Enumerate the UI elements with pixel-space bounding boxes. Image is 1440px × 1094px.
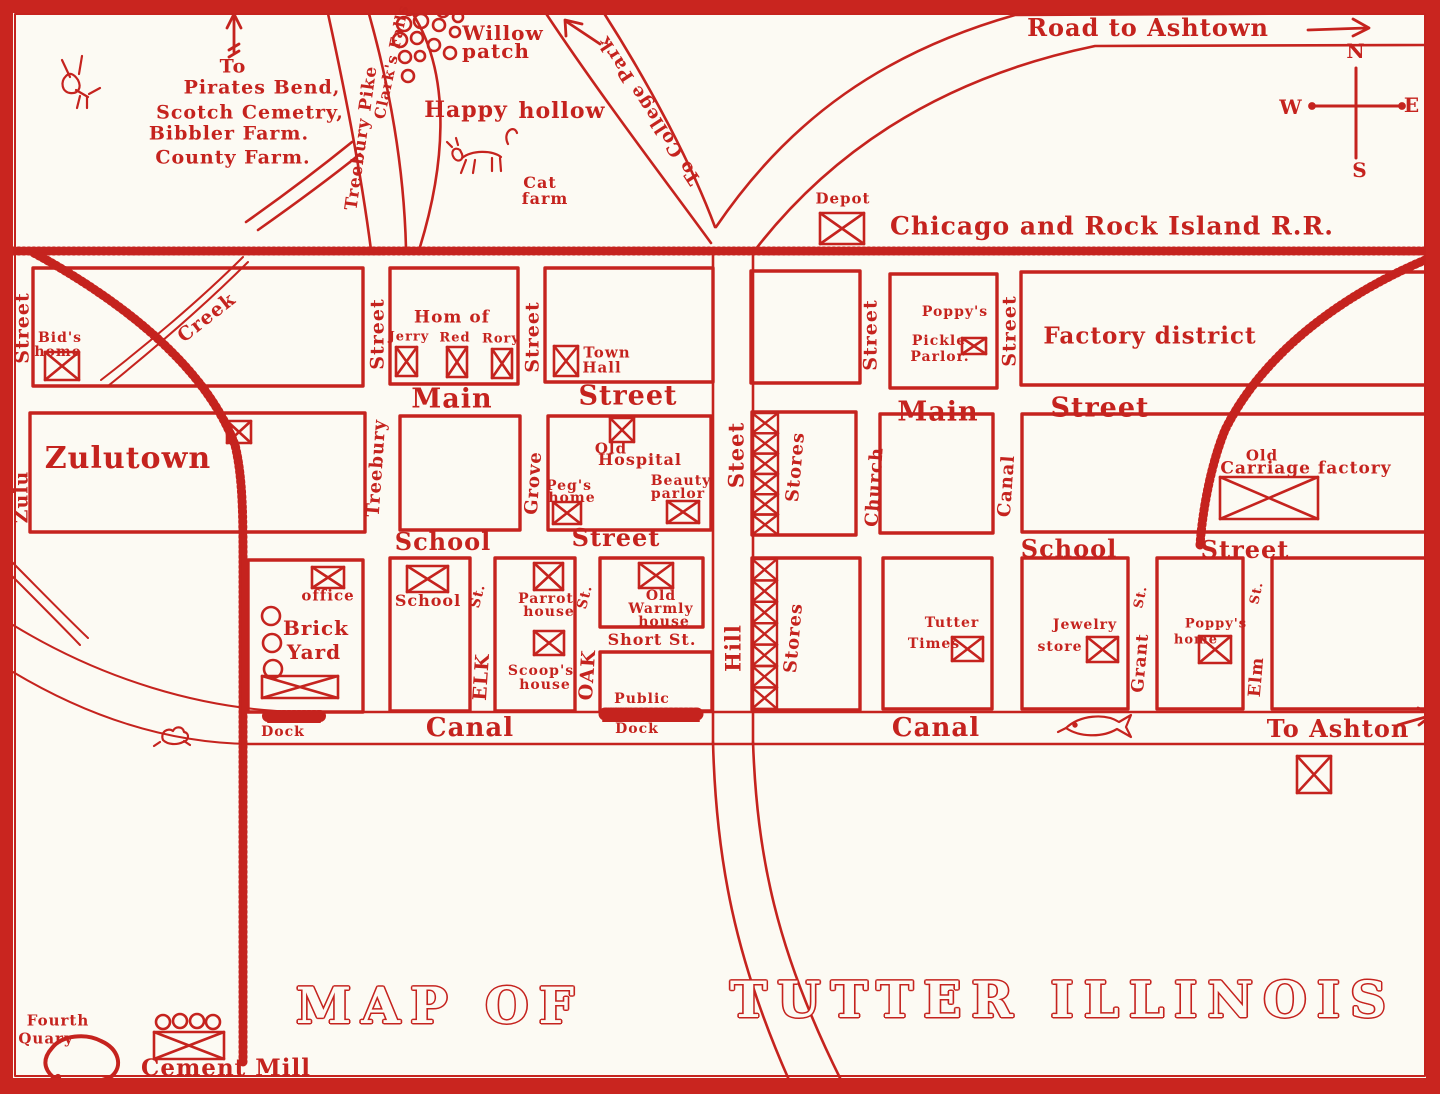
label-church-r2: Church — [863, 446, 887, 527]
label-treebury-street-r1: Street — [369, 298, 388, 369]
label-bids: Bid's — [38, 331, 82, 345]
label-depot: Depot — [816, 192, 871, 207]
map-labels-layer: ToPirates Bend,Scotch Cemetry,Bibbler Fa… — [0, 0, 1440, 1094]
label-grant-st: St. — [1132, 584, 1149, 609]
label-canal-street-r1: Street — [1001, 295, 1020, 366]
label-county-farm: County Farm. — [155, 149, 310, 168]
label-scoops-house: house — [519, 678, 570, 692]
label-stores-r2: Stores — [784, 431, 808, 503]
label-hill-steet: Steet — [726, 422, 747, 488]
label-jewelry: Jewelry — [1053, 618, 1117, 632]
label-carriage-2: Carriage factory — [1220, 461, 1391, 478]
label-poppys-home-2: home — [1174, 634, 1218, 647]
label-office: office — [301, 589, 354, 604]
label-old-hospital-2: Hospital — [598, 452, 682, 468]
label-church-street-r1: Street — [862, 299, 881, 370]
label-elm-st: St. — [1248, 580, 1265, 605]
label-compass-e: E — [1404, 95, 1420, 115]
label-main-street-right: Street — [1050, 395, 1149, 422]
label-creek-upper: Creek — [175, 290, 240, 347]
label-poppys-home-1: Poppy's — [1185, 618, 1247, 631]
label-clarks-falls: Clark's Falls — [373, 4, 412, 121]
label-school-right: School — [1021, 537, 1118, 561]
label-bibbler-farm: Bibbler Farm. — [149, 125, 309, 144]
label-oak-st: St. — [575, 583, 595, 610]
label-rory: Rory — [482, 333, 520, 346]
label-compass-w: W — [1279, 97, 1302, 117]
label-map-of: MAP OF — [296, 981, 584, 1031]
label-school-bldg: School — [395, 593, 461, 609]
label-elk-st: St. — [468, 582, 488, 609]
label-hill: Hill — [723, 624, 744, 672]
label-to-direction: To — [220, 58, 247, 77]
label-grove-r2: Grove — [523, 451, 545, 516]
label-grant: Grant — [1130, 633, 1152, 694]
label-town-hall: Hall — [582, 361, 621, 376]
label-short-st: Short St. — [608, 632, 697, 648]
label-main-right: Main — [897, 399, 978, 426]
label-zulu-street-upper: Street — [14, 292, 33, 363]
label-jewelry-store: store — [1038, 640, 1083, 654]
label-elm: Elm — [1247, 656, 1267, 698]
label-canal-st-r2: Canal — [996, 454, 1018, 518]
label-scoops: Scoop's — [508, 664, 574, 678]
label-school-street-right: Street — [1201, 538, 1290, 562]
label-red: Red — [439, 332, 470, 345]
label-road-to-ashtown: Road to Ashtown — [1027, 16, 1269, 40]
label-tutter-times-1: Tutter — [925, 616, 980, 630]
label-parrot-house: house — [523, 605, 574, 619]
label-railroad-name: Chicago and Rock Island R.R. — [890, 214, 1334, 239]
label-compass-n: N — [1346, 41, 1365, 61]
label-warmly-3: house — [638, 615, 689, 629]
label-zulu-street-lower: Zulu — [13, 471, 32, 524]
label-dock-left: Dock — [261, 725, 305, 739]
label-canal-right: Canal — [892, 715, 980, 741]
label-factory-district: Factory district — [1043, 325, 1256, 348]
label-beauty-parlor: parlor — [651, 487, 705, 501]
label-main-street-left: Street — [578, 383, 677, 410]
label-pirates-bend: Pirates Bend, — [184, 79, 341, 98]
label-public-dock: Dock — [615, 722, 659, 736]
label-oak: OAK — [577, 649, 599, 701]
label-public: Public — [614, 692, 670, 706]
label-elk: ELK — [471, 653, 493, 702]
label-to-ashton: To Ashton — [1267, 717, 1410, 741]
label-main-left: Main — [411, 386, 492, 413]
label-cat-farm: farm — [522, 191, 569, 207]
label-treebury-pike: Treebury Pike — [343, 65, 380, 212]
tutter-map: ToPirates Bend,Scotch Cemetry,Bibbler Fa… — [0, 0, 1440, 1094]
label-scotch-cemetry: Scotch Cemetry, — [156, 104, 344, 123]
label-compass-s: S — [1352, 160, 1367, 180]
label-brick: Brick — [283, 618, 349, 638]
label-zulutown: Zulutown — [45, 444, 211, 474]
label-grove-street-r1: Street — [524, 301, 543, 372]
label-treebury-r2: Treebury — [365, 418, 390, 517]
label-bids-home: home — [34, 345, 81, 359]
label-cement-mill: Cement Mill — [141, 1057, 311, 1080]
label-brick-yard: Yard — [287, 642, 341, 662]
label-hom-of: Hom of — [414, 310, 490, 327]
label-poppys-pickle-2: Pickle — [912, 334, 966, 348]
label-to-college-park: To College Park — [595, 33, 704, 188]
label-fourth: Fourth — [27, 1014, 89, 1029]
label-school-street-left: Street — [572, 526, 661, 550]
label-happy: Happy — [424, 99, 508, 121]
label-school-left: School — [395, 530, 492, 554]
label-jerry: Jerry — [389, 331, 430, 344]
label-poppys-pickle-1: Poppy's — [922, 305, 988, 319]
label-poppys-pickle-3: Parlor. — [910, 350, 969, 364]
label-stores-r3: Stores — [782, 602, 806, 674]
label-pegs-home: home — [548, 491, 595, 505]
label-tutter-times-2: Times — [908, 637, 960, 651]
label-hollow: hollow — [519, 100, 606, 122]
label-tutter-illinois: TUTTER ILLINOIS — [730, 975, 1396, 1025]
label-willow-patch: patch — [462, 41, 530, 61]
label-canal-left: Canal — [426, 715, 514, 741]
label-fourth-quary: Quary — [18, 1032, 73, 1047]
